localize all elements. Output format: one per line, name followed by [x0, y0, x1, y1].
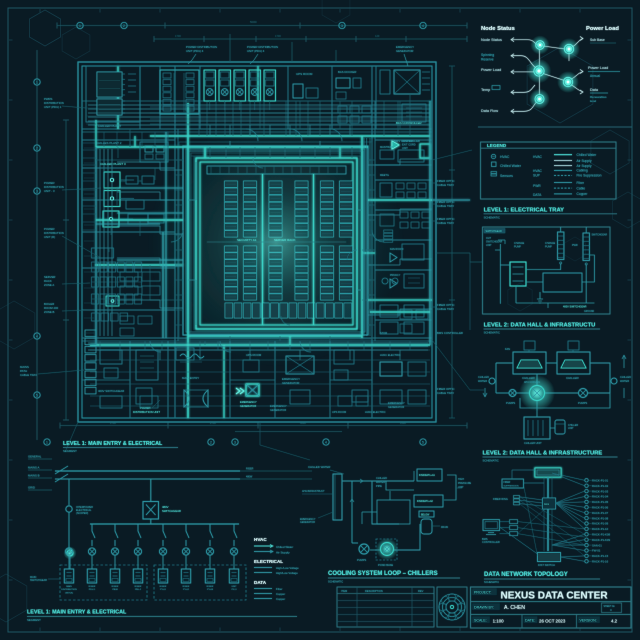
svg-text:Air Supply: Air Supply — [577, 159, 592, 163]
svg-text:MAINS A: MAINS A — [28, 466, 39, 470]
svg-text:SCHEMATIC: SCHEMATIC — [484, 580, 499, 584]
svg-text:VERSION:: VERSION: — [580, 618, 597, 622]
svg-text:High-/Low Voltage: High-/Low Voltage — [276, 566, 299, 570]
svg-text:MAIN: MAIN — [66, 585, 72, 588]
svg-text:Copper: Copper — [276, 592, 285, 596]
svg-text:1: 1 — [36, 80, 38, 84]
svg-text:Chilled Water: Chilled Water — [500, 164, 522, 168]
svg-text:STOR: STOR — [380, 331, 387, 335]
svg-text:CABLE TRAY: CABLE TRAY — [20, 373, 37, 377]
svg-text:FAN: FAN — [505, 347, 510, 351]
svg-text:Temp: Temp — [481, 88, 490, 92]
svg-text:UNIT: UNIT — [486, 244, 492, 247]
svg-text:RACK-P1-04: RACK-P1-04 — [592, 495, 609, 499]
svg-text:CONTROLLER: CONTROLLER — [482, 540, 500, 544]
svg-text:CABLE TRAY: CABLE TRAY — [437, 391, 454, 395]
svg-text:400V SWITCHGEAR: 400V SWITCHGEAR — [563, 306, 587, 309]
svg-text:Cable: Cable — [577, 186, 586, 190]
svg-text:RACK-P1-K09: RACK-P1-K09 — [592, 538, 610, 542]
svg-text:PIPE: PIPE — [376, 484, 382, 488]
svg-text:UNIT: UNIT — [231, 586, 237, 588]
svg-text:PWR: PWR — [572, 244, 578, 247]
svg-text:Copper: Copper — [577, 192, 589, 196]
svg-text:RACK-P1-07: RACK-P1-07 — [592, 511, 609, 515]
svg-text:RISER: RISER — [207, 586, 214, 588]
svg-text:2: 2 — [36, 146, 38, 150]
svg-text:CHILLER: CHILLER — [566, 376, 580, 380]
svg-text:RISER: RISER — [112, 586, 119, 588]
svg-text:26 OCT 2023: 26 OCT 2023 — [539, 618, 566, 623]
svg-text:Power Load: Power Load — [588, 66, 608, 70]
svg-text:Spinning: Spinning — [481, 53, 494, 57]
svg-text:RACK-P1-02: RACK-P1-02 — [592, 484, 609, 488]
svg-text:LEVEL 2: DATA HALL & INFRASTRU: LEVEL 2: DATA HALL & INFRASTRUCTU — [484, 323, 596, 329]
svg-text:DESCRIPTION: DESCRIPTION — [365, 589, 383, 593]
svg-text:RISER: RISER — [246, 468, 254, 471]
svg-text:CABLE TRAY: CABLE TRAY — [437, 183, 454, 187]
svg-text:RACK-P1-05: RACK-P1-05 — [592, 500, 609, 504]
svg-text:PWR: PWR — [533, 184, 541, 188]
svg-text:Fire Suppression: Fire Suppression — [577, 174, 602, 178]
svg-text:DISTRIBUTION UNIT: DISTRIBUTION UNIT — [133, 410, 160, 414]
svg-text:INSIDE/P1+A1: INSIDE/P1+A1 — [419, 474, 436, 477]
svg-text:CHILLED WATER: CHILLED WATER — [308, 465, 330, 469]
svg-text:HVAC ELECTRIC: HVAC ELECTRIC — [365, 410, 386, 414]
svg-text:DATA: DATA — [254, 580, 267, 585]
svg-text:480W: 480W — [246, 476, 253, 479]
svg-text:GRID: GRID — [28, 486, 35, 490]
svg-text:GENERAL: GENERAL — [28, 455, 42, 459]
svg-text:UNIT: UNIT — [568, 427, 574, 430]
svg-text:1700: 1700 — [175, 34, 181, 38]
svg-text:3: 3 — [234, 440, 236, 444]
svg-text:CHILLER PLANT: CHILLER PLANT — [98, 124, 121, 128]
svg-text:Power Load: Power Load — [481, 68, 501, 72]
svg-text:SEGMENT: SEGMENT — [63, 449, 77, 453]
svg-text:PUMP: PUMP — [514, 246, 521, 249]
svg-text:5: 5 — [36, 393, 38, 397]
svg-text:DATA: DATA — [533, 193, 542, 197]
svg-text:GROUND: GROUND — [584, 311, 595, 313]
svg-text:SEGMENT: SEGMENT — [27, 618, 41, 622]
svg-text:1: 1 — [79, 24, 81, 28]
svg-text:ELECTRICAL: ELECTRICAL — [254, 559, 283, 564]
svg-text:4: 4 — [325, 440, 327, 444]
svg-text:Sensors: Sensors — [500, 174, 513, 178]
svg-text:PUMPS: PUMPS — [357, 558, 366, 562]
svg-text:Cabling: Cabling — [577, 169, 588, 173]
svg-text:level: level — [590, 99, 597, 103]
svg-text:Power Load: Power Load — [586, 26, 619, 32]
svg-text:AHU/INFRASTRUCT: AHU/INFRASTRUCT — [302, 490, 325, 493]
svg-text:Reserve: Reserve — [481, 58, 494, 62]
svg-text:CABLE TRAY: CABLE TRAY — [437, 221, 454, 225]
svg-text:2: 2 — [123, 24, 125, 28]
svg-text:UPS ROOM: UPS ROOM — [296, 72, 313, 76]
svg-text:SWITCHGEAR: SWITCHGEAR — [592, 234, 608, 237]
svg-text:Copper: Copper — [276, 597, 285, 601]
svg-text:Air Supply: Air Supply — [577, 164, 592, 168]
svg-text:WATER: WATER — [376, 480, 385, 484]
svg-text:Node Status: Node Status — [481, 26, 515, 32]
svg-text:SUPPRESSION: SUPPRESSION — [504, 485, 520, 487]
svg-text:RACK-P1-K08: RACK-P1-K08 — [592, 533, 610, 537]
svg-text:RACK-P1-16: RACK-P1-16 — [592, 560, 609, 564]
svg-text:RACK-P1-01: RACK-P1-01 — [592, 479, 609, 483]
svg-text:SWITCHGEAR: SWITCHGEAR — [486, 230, 502, 233]
svg-text:HVAC ELECTRIC: HVAC ELECTRIC — [380, 353, 401, 357]
svg-text:ZONE A: ZONE A — [44, 283, 54, 287]
svg-text:CHILLED: CHILLED — [376, 476, 387, 480]
svg-text:RISER: RISER — [183, 586, 190, 588]
svg-text:SCHEMATIC: SCHEMATIC — [328, 580, 343, 584]
svg-text:ZONE B: ZONE B — [44, 310, 55, 314]
svg-text:1: 1 — [46, 440, 48, 444]
svg-text:UNIT: UNIT — [458, 486, 464, 489]
svg-text:PDU-1: PDU-1 — [89, 589, 96, 591]
svg-text:RACK-P1-06: RACK-P1-06 — [592, 506, 609, 510]
svg-text:INSIDE/P1+A2: INSIDE/P1+A2 — [417, 500, 434, 503]
svg-text:SAN-01: SAN-01 — [592, 543, 602, 547]
svg-text:GENERATOR: GENERATOR — [270, 408, 286, 412]
svg-text:5: 5 — [422, 440, 424, 444]
svg-text:RACK-P1-03: RACK-P1-03 — [592, 489, 609, 493]
svg-text:DATA NETWORK TOPOLOGY: DATA NETWORK TOPOLOGY — [484, 572, 568, 578]
svg-text:High/Low Voltage: High/Low Voltage — [276, 571, 298, 575]
svg-text:MANTRAP: MANTRAP — [380, 145, 393, 149]
svg-text:UNIT (PDU) 4: UNIT (PDU) 4 — [247, 49, 265, 53]
svg-text:PY-01: PY-01 — [160, 589, 167, 591]
svg-text:4: 4 — [422, 24, 424, 28]
svg-text:WATER: WATER — [478, 379, 487, 383]
svg-text:DATE:: DATE: — [525, 618, 535, 622]
svg-text:RISER: RISER — [89, 586, 96, 588]
svg-text:DIST SWITCH: DIST SWITCH — [538, 563, 555, 567]
svg-text:UNIT: UNIT — [402, 147, 408, 150]
svg-text:RACK-P1-15: RACK-P1-15 — [592, 554, 609, 558]
svg-text:SCHEMATIC: SCHEMATIC — [484, 216, 500, 220]
svg-text:SCHEMATIC: SCHEMATIC — [483, 459, 499, 463]
svg-text:Fiber: Fiber — [577, 181, 585, 185]
svg-text:ITEM: ITEM — [341, 589, 347, 593]
svg-text:PY-08: PY-08 — [207, 589, 214, 591]
svg-text:LEVEL 1: MAIN ENTRY & ELECTRIC: LEVEL 1: MAIN ENTRY & ELECTRICAL — [27, 610, 127, 616]
svg-text:PROJECT:: PROJECT: — [474, 591, 492, 595]
svg-text:1:100: 1:100 — [493, 618, 505, 623]
svg-text:UNIT - 3: UNIT - 3 — [44, 189, 55, 193]
svg-text:REV: REV — [418, 589, 424, 593]
svg-text:HIGH: HIGH — [458, 478, 464, 481]
svg-text:CHILLED: CHILLED — [478, 375, 489, 379]
svg-text:4: 4 — [36, 334, 38, 338]
svg-text:4.2: 4.2 — [611, 618, 618, 623]
svg-text:PUMPS: PUMPS — [506, 401, 515, 405]
svg-text:RACK-P1-10: RACK-P1-10 — [592, 527, 609, 531]
svg-text:CHILLES PLANT 2: CHILLES PLANT 2 — [96, 141, 122, 145]
svg-text:LEVEL 2: DATA HALL & INFRASTRU: LEVEL 2: DATA HALL & INFRASTRUCTURE — [483, 451, 603, 457]
svg-text:HVAC: HVAC — [533, 169, 543, 173]
svg-text:GENERATOR: GENERATOR — [282, 381, 299, 385]
svg-text:2: 2 — [210, 440, 212, 444]
svg-text:SWITCHGEAR: SWITCHGEAR — [30, 579, 47, 582]
svg-text:WATER: WATER — [620, 379, 629, 383]
svg-text:UNIT (PDU) 1: UNIT (PDU) 1 — [44, 105, 62, 109]
svg-text:FW-01: FW-01 — [592, 549, 601, 553]
svg-text:A. CHEN: A. CHEN — [504, 605, 525, 611]
svg-text:PX-3: PX-3 — [232, 589, 238, 591]
svg-text:EMERGENCY: EMERGENCY — [388, 401, 405, 405]
svg-text:UPS ROOM: UPS ROOM — [332, 410, 346, 414]
svg-text:DRAIN: DRAIN — [441, 526, 448, 529]
svg-text:LEGEND: LEGEND — [487, 143, 507, 148]
svg-text:Sub Base: Sub Base — [590, 38, 605, 42]
svg-text:PRESSURE: PRESSURE — [458, 482, 472, 485]
svg-text:(SCOPER): (SCOPER) — [76, 512, 88, 515]
svg-text:Fiber: Fiber — [276, 587, 282, 591]
svg-text:FIBER: FIBER — [504, 482, 511, 484]
svg-text:LEVEL 1: ELECTRICAL TRAY: LEVEL 1: ELECTRICAL TRAY — [484, 208, 565, 214]
svg-text:3: 3 — [341, 24, 343, 28]
svg-text:DRAWN BY:: DRAWN BY: — [474, 605, 494, 609]
svg-text:5000: 5000 — [250, 20, 257, 24]
svg-text:AGG: AGG — [544, 503, 549, 506]
svg-text:LEVEL 1: MAIN ENTRY & ELECTRIC: LEVEL 1: MAIN ENTRY & ELECTRICAL — [63, 441, 163, 447]
svg-text:COOLING SYSTEM LOOP – CHILLERS: COOLING SYSTEM LOOP – CHILLERS — [328, 571, 438, 577]
svg-text:GENERATOR: GENERATOR — [396, 49, 413, 53]
svg-text:120: 120 — [375, 34, 380, 38]
svg-text:BELOW: BELOW — [421, 515, 430, 517]
svg-text:MAIN ENTRY: MAIN ENTRY — [182, 376, 199, 380]
svg-text:Annual: Annual — [590, 74, 600, 78]
svg-text:DISTRIBUTION: DISTRIBUTION — [61, 589, 77, 591]
svg-text:AHU COOLING: AHU COOLING — [524, 381, 540, 384]
svg-text:CHILLER UNIT: CHILLER UNIT — [524, 441, 542, 445]
svg-text:Chiled Water: Chiled Water — [276, 545, 293, 549]
svg-text:120: 120 — [121, 179, 126, 183]
svg-text:EMERGENCY: EMERGENCY — [270, 404, 287, 408]
svg-text:BAS DOCKER: BAS DOCKER — [338, 70, 356, 74]
svg-text:HVAC: HVAC — [500, 155, 510, 159]
svg-text:FIBER RING: FIBER RING — [493, 497, 508, 501]
svg-text:CABLE TRAY: CABLE TRAY — [437, 204, 454, 208]
svg-text:GENERATOR: GENERATOR — [388, 405, 404, 409]
svg-text:UNIT (PDU) 4: UNIT (PDU) 4 — [186, 49, 204, 53]
svg-text:GENERATOR: GENERATOR — [300, 521, 315, 524]
svg-text:120: 120 — [137, 179, 142, 183]
svg-text:3: 3 — [36, 189, 38, 193]
svg-text:CHILLED: CHILLED — [620, 375, 631, 379]
svg-text:PY-02: PY-02 — [183, 589, 190, 591]
svg-text:Node Status: Node Status — [481, 38, 502, 42]
svg-text:NEXUS DATA CENTER: NEXUS DATA CENTER — [501, 591, 609, 602]
svg-text:BMS CONTROLLER: BMS CONTROLLER — [437, 331, 463, 335]
svg-text:BMS CONTROLLER: BMS CONTROLLER — [394, 139, 420, 143]
svg-text:SUP: SUP — [533, 174, 541, 178]
svg-text:PUMP: PUMP — [545, 246, 552, 249]
svg-text:PUMPS: PUMPS — [578, 401, 587, 405]
svg-text:UNIT (R): UNIT (R) — [44, 235, 55, 239]
svg-text:1700: 1700 — [275, 34, 281, 38]
svg-text:HVAC: HVAC — [533, 155, 543, 159]
svg-text:MAINS B: MAINS B — [28, 474, 40, 478]
svg-text:EMERGENCY: EMERGENCY — [240, 400, 257, 404]
svg-text:CABLE TRAY: CABLE TRAY — [437, 307, 454, 311]
svg-text:PBL-2: PBL-2 — [135, 589, 142, 591]
svg-text:Data Flow: Data Flow — [481, 109, 498, 113]
svg-text:400V SWITCHGEAR: 400V SWITCHGEAR — [98, 389, 124, 393]
svg-text:GENERATOR: GENERATOR — [240, 404, 256, 408]
svg-text:SCHEMATIC: SCHEMATIC — [484, 331, 500, 335]
svg-text:RISER: RISER — [135, 586, 142, 588]
svg-text:Chilled Water: Chilled Water — [577, 153, 598, 157]
svg-text:RACK-P1-08: RACK-P1-08 — [592, 516, 609, 520]
svg-text:SCALE:: SCALE: — [474, 618, 487, 622]
svg-text:PB08: PB08 — [112, 589, 118, 591]
svg-text:UNIT(K): UNIT(K) — [65, 592, 73, 594]
svg-text:SWITCHGEAR: SWITCHGEAR — [162, 509, 181, 513]
svg-text:POND BASE: POND BASE — [378, 563, 393, 567]
svg-text:RACK-P1-09: RACK-P1-09 — [592, 522, 609, 526]
svg-text:HVAC: HVAC — [254, 537, 267, 542]
svg-text:Air Supply: Air Supply — [276, 551, 290, 555]
svg-text:RISER: RISER — [160, 586, 167, 588]
svg-text:Data: Data — [590, 88, 599, 92]
